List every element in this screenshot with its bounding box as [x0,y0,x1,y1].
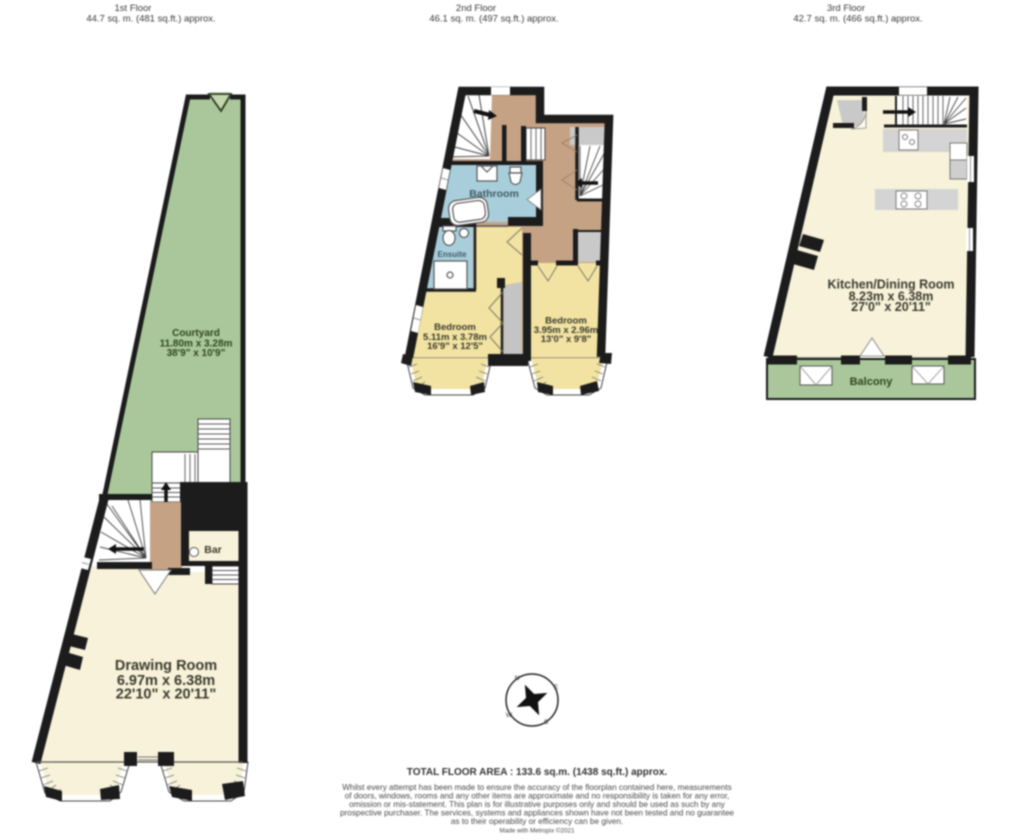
svg-text:S: S [544,719,549,726]
svg-text:3rd Floor: 3rd Floor [827,3,865,14]
svg-text:2nd Floor: 2nd Floor [456,3,496,14]
svg-text:N: N [515,675,520,682]
svg-text:Made with Metropix ©2021: Made with Metropix ©2021 [500,827,575,835]
svg-text:22'10" x 20'11": 22'10" x 20'11" [116,687,216,703]
svg-text:16'9" x 12'5": 16'9" x 12'5" [427,341,483,352]
svg-text:TOTAL FLOOR AREA : 133.6 sq.m.: TOTAL FLOOR AREA : 133.6 sq.m. (1438 sq.… [407,767,668,778]
svg-text:as to their operability or eff: as to their operability or efficiency ca… [451,817,623,826]
svg-text:13'0" x 9'8": 13'0" x 9'8" [541,334,592,345]
svg-text:Bar: Bar [204,544,222,556]
svg-text:Drawing Room: Drawing Room [115,658,217,674]
svg-text:42.7 sq. m. (466 sq.ft.) appro: 42.7 sq. m. (466 sq.ft.) approx. [793,14,922,25]
svg-text:W: W [506,712,513,719]
svg-text:Balcony: Balcony [850,376,894,388]
svg-text:Courtyard: Courtyard [172,328,220,339]
svg-text:Bathroom: Bathroom [469,188,519,200]
svg-text:1st Floor: 1st Floor [115,3,152,14]
svg-text:44.7 sq. m. (481 sq.ft.) appro: 44.7 sq. m. (481 sq.ft.) approx. [86,14,215,25]
svg-text:27'0" x 20'11": 27'0" x 20'11" [851,300,931,314]
svg-text:E: E [554,684,559,691]
svg-text:38'9" x 10'9": 38'9" x 10'9" [167,348,226,359]
svg-text:Ensuite: Ensuite [438,250,467,259]
svg-text:46.1 sq. m. (497 sq.ft.) appro: 46.1 sq. m. (497 sq.ft.) approx. [429,14,558,25]
